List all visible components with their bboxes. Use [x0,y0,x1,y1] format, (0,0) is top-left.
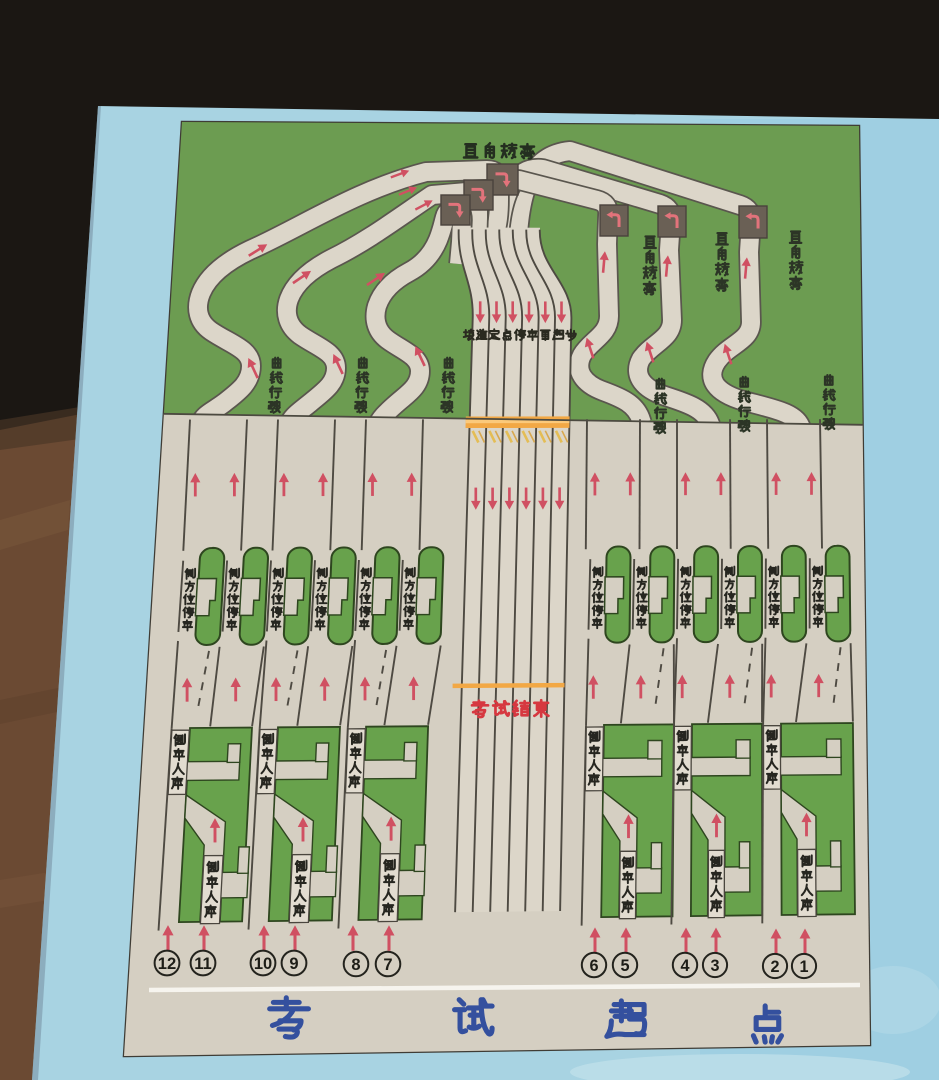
svg-text:11: 11 [194,954,212,973]
svg-text:5: 5 [620,957,629,975]
svg-text:3: 3 [710,957,719,975]
svg-text:12: 12 [158,954,176,973]
svg-text:2: 2 [770,958,779,976]
svg-text:4: 4 [680,957,689,975]
svg-text:1: 1 [799,958,808,976]
svg-text:6: 6 [589,957,598,975]
svg-text:7: 7 [383,956,392,974]
svg-text:8: 8 [351,956,360,974]
svg-text:9: 9 [289,955,298,973]
svg-text:10: 10 [254,955,272,973]
